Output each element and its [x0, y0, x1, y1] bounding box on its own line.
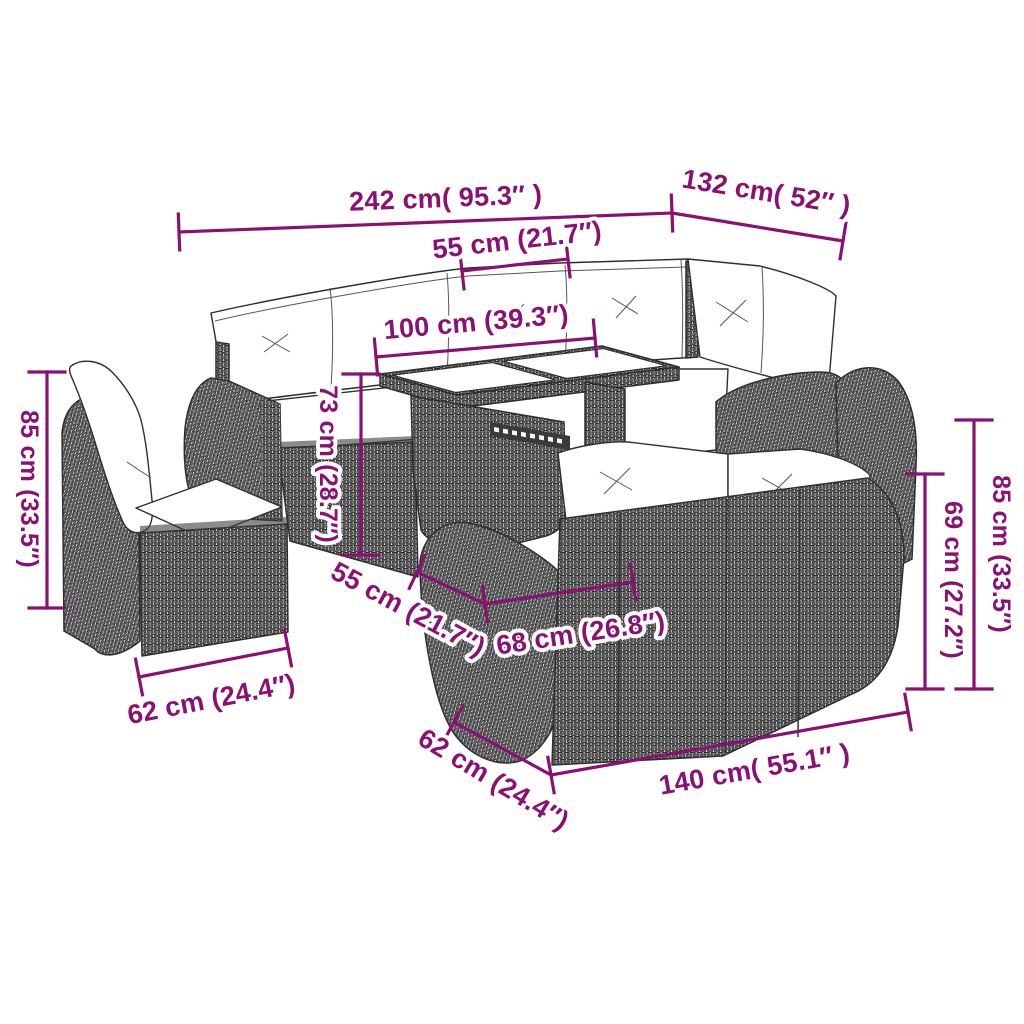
svg-text:85 cm (33.5″): 85 cm (33.5″): [987, 475, 1015, 633]
svg-text:73 cm (28.7″): 73 cm (28.7″): [314, 385, 342, 543]
svg-text:85 cm (33.5″): 85 cm (33.5″): [15, 410, 43, 568]
svg-text:69 cm (27.2″): 69 cm (27.2″): [939, 501, 967, 659]
svg-text:62 cm (24.4″): 62 cm (24.4″): [125, 668, 298, 730]
svg-text:132 cm( 52″ ): 132 cm( 52″ ): [680, 164, 853, 221]
svg-text:242 cm( 95.3″ ): 242 cm( 95.3″ ): [349, 179, 543, 216]
